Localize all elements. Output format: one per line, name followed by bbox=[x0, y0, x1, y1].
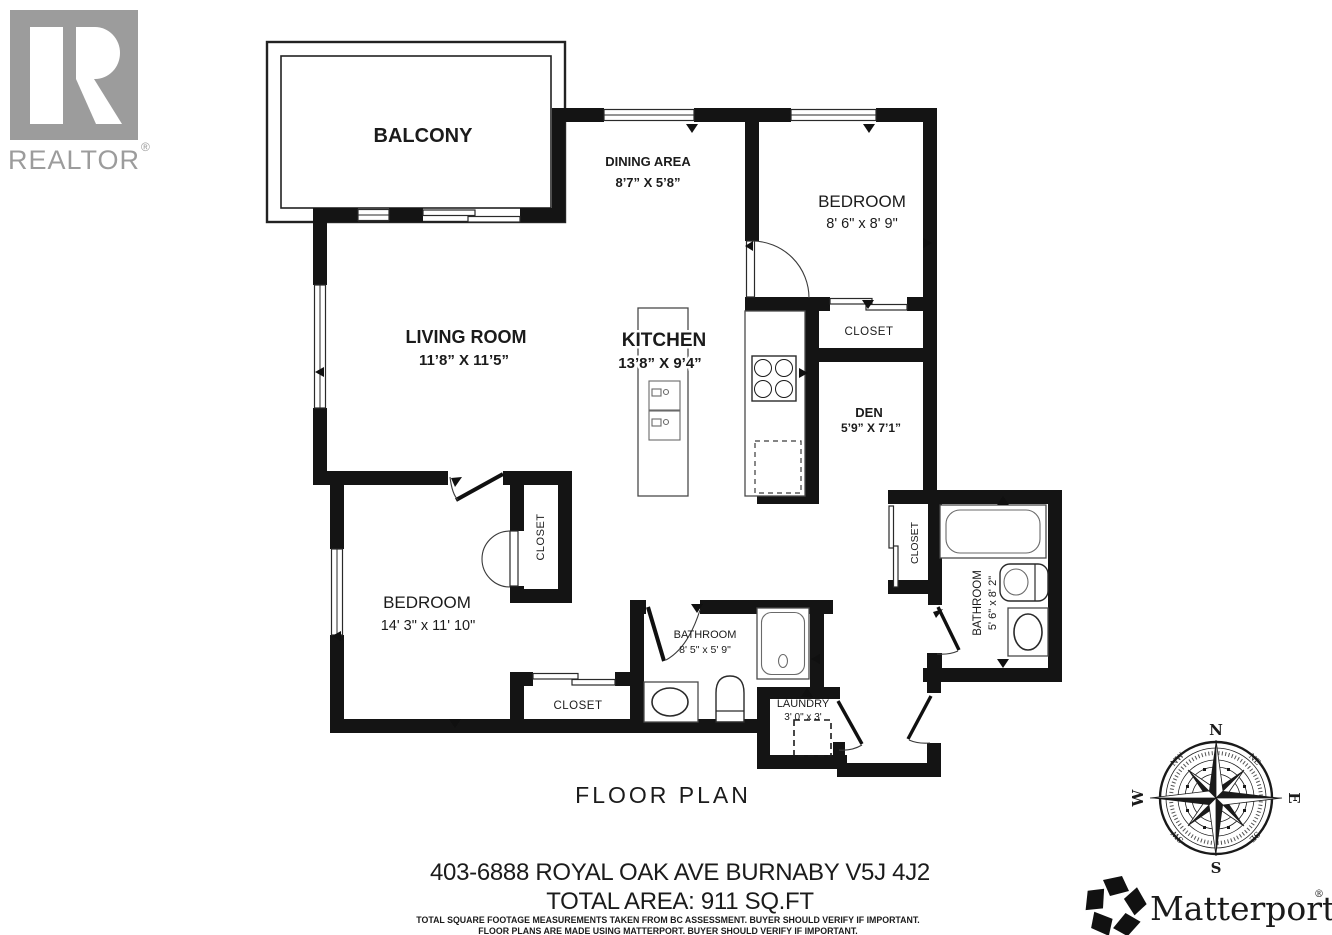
wall-segment bbox=[330, 478, 344, 549]
sliding-door bbox=[533, 674, 578, 680]
label-closet-entry: CLOSET bbox=[909, 521, 921, 564]
toilet-main bbox=[716, 676, 744, 722]
floor-plan-page: REALTOR ® bbox=[0, 0, 1332, 935]
wall-segment bbox=[510, 471, 524, 531]
sliding-door bbox=[423, 210, 475, 216]
wall-segment bbox=[805, 297, 819, 504]
sliding-door bbox=[889, 506, 894, 548]
matterport-pinwheel-icon bbox=[1082, 876, 1149, 935]
wall-segment bbox=[745, 108, 759, 241]
disclaimer-line-1: TOTAL SQUARE FOOTAGE MEASUREMENTS TAKEN … bbox=[416, 915, 919, 925]
stove bbox=[752, 356, 796, 401]
wall-segment bbox=[313, 208, 358, 222]
compass-star bbox=[1150, 740, 1282, 856]
label-laundry: LAUNDRY bbox=[777, 698, 830, 710]
bathtub-ensuite bbox=[940, 505, 1046, 558]
closet-french-doors bbox=[482, 531, 518, 587]
wall-segment bbox=[389, 208, 423, 222]
wall-segment bbox=[552, 108, 565, 222]
label-bedroom-top: BEDROOM bbox=[818, 192, 906, 211]
wall-segment bbox=[330, 635, 344, 733]
wall-segment bbox=[558, 471, 572, 603]
wall-segment bbox=[330, 719, 770, 733]
wall-segment bbox=[630, 614, 644, 733]
matterport-logo: Matterport ® bbox=[1082, 876, 1332, 935]
label-bedroom-main-dims: 14' 3" x 11' 10" bbox=[381, 618, 476, 634]
matterport-reg-mark: ® bbox=[1314, 889, 1324, 900]
disclaimer-line-2: FLOOR PLANS ARE MADE USING MATTERPORT. B… bbox=[478, 926, 857, 935]
label-kitchen-dims: 13’8” X 9’4” bbox=[618, 355, 701, 372]
realtor-reg-mark: ® bbox=[141, 140, 150, 154]
wall-segment bbox=[510, 589, 567, 603]
sliding-door bbox=[572, 680, 615, 686]
label-den: DEN bbox=[855, 405, 882, 420]
label-living-room-dims: 11’8” X 11’5” bbox=[419, 352, 509, 369]
sliding-door bbox=[894, 546, 899, 587]
wall-segment bbox=[928, 653, 942, 682]
label-dining-area: DINING AREA bbox=[605, 154, 691, 169]
wall-segment bbox=[313, 222, 327, 285]
label-kitchen: KITCHEN bbox=[622, 330, 706, 351]
label-bedroom-main: BEDROOM bbox=[383, 593, 471, 612]
realtor-wordmark: REALTOR bbox=[8, 145, 140, 175]
compass-west-label: W bbox=[1129, 788, 1147, 807]
wall-segment bbox=[837, 763, 941, 777]
wall-segment bbox=[923, 108, 937, 504]
fixtures bbox=[638, 308, 1048, 756]
label-bathroom-ensuite-dims: 5' 6" x 8' 2" bbox=[987, 576, 999, 630]
bedroom-main-door bbox=[450, 474, 503, 500]
wall-segment bbox=[694, 108, 791, 122]
wall-segment bbox=[888, 490, 1062, 504]
label-balcony: BALCONY bbox=[374, 125, 474, 147]
sliding-door bbox=[866, 305, 907, 311]
vanity-sink-main bbox=[644, 682, 698, 722]
label-bedroom-top-dims: 8' 6" x 8' 9" bbox=[826, 216, 897, 232]
label-dining-area-dims: 8’7” X 5’8” bbox=[615, 175, 680, 190]
kitchen-counter bbox=[745, 311, 805, 496]
matterport-wordmark: Matterport bbox=[1150, 889, 1332, 928]
realtor-logo: REALTOR ® bbox=[8, 10, 150, 175]
label-closet-bedroom-top: CLOSET bbox=[844, 326, 893, 338]
bathtub-main bbox=[757, 608, 809, 679]
entry-door bbox=[908, 696, 931, 743]
page-title: FLOOR PLAN bbox=[575, 782, 751, 808]
label-living-room: LIVING ROOM bbox=[406, 327, 527, 347]
compass-east-label: E bbox=[1285, 792, 1303, 803]
wall-segment bbox=[923, 668, 1062, 682]
floor-plan-canvas: REALTOR ® bbox=[0, 0, 1332, 935]
label-bathroom-main-dims: 8' 5" x 5' 9" bbox=[679, 644, 731, 656]
bathroom-ensuite-door bbox=[933, 607, 959, 654]
wall-segment bbox=[1048, 490, 1062, 682]
wall-segment bbox=[812, 348, 937, 362]
wall-segment bbox=[510, 672, 533, 686]
wall-segment bbox=[520, 208, 565, 222]
compass-south-label: S bbox=[1211, 859, 1222, 877]
property-address: 403-6888 ROYAL OAK AVE BURNABY V5J 4J2 bbox=[430, 859, 930, 886]
wall-segment bbox=[810, 600, 824, 687]
washer bbox=[794, 720, 831, 756]
total-area: TOTAL AREA: 911 SQ.FT bbox=[546, 888, 814, 915]
compass-rose-icon: N S E W NE SE SW NW bbox=[1129, 721, 1303, 877]
label-bathroom-main: BATHROOM bbox=[674, 629, 737, 641]
wall-segment bbox=[927, 743, 941, 777]
label-laundry-dims: 3' 0" x 3' bbox=[784, 712, 821, 723]
label-den-dims: 5’9” X 7’1” bbox=[841, 421, 901, 435]
sink-ensuite bbox=[1008, 608, 1048, 656]
compass-north-label: N bbox=[1209, 721, 1223, 739]
sliding-door bbox=[468, 217, 520, 223]
label-bathroom-ensuite: BATHROOM bbox=[972, 570, 984, 636]
footer: FLOOR PLAN 403-6888 ROYAL OAK AVE BURNAB… bbox=[416, 782, 930, 935]
bedroom-top-door bbox=[745, 241, 809, 298]
label-closet-hall: CLOSET bbox=[553, 700, 602, 712]
label-closet-bedroom-main: CLOSET bbox=[535, 513, 547, 560]
wall-segment bbox=[630, 600, 646, 614]
toilet-ensuite bbox=[1000, 564, 1048, 601]
